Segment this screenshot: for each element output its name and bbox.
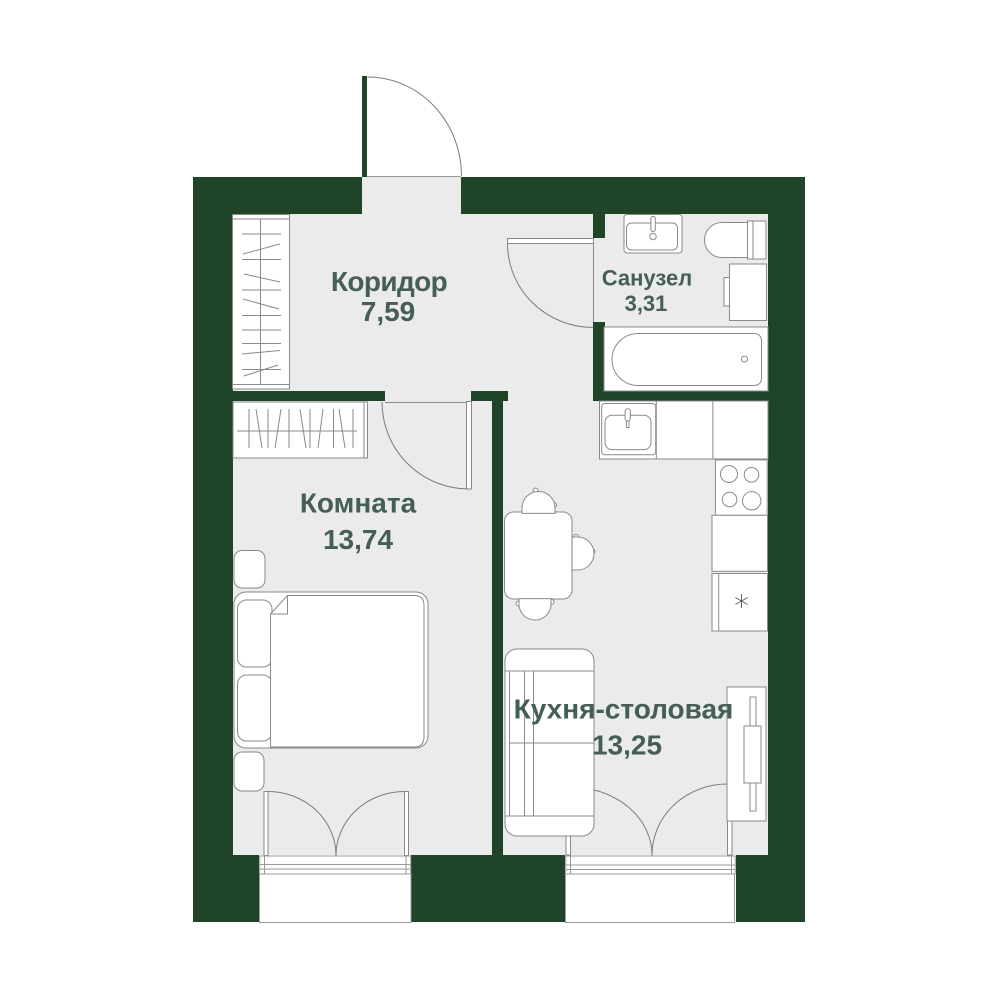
svg-text:3,31: 3,31 (625, 291, 668, 316)
svg-text:Коридор: Коридор (331, 266, 447, 297)
svg-text:7,59: 7,59 (361, 296, 416, 327)
svg-text:Комната: Комната (300, 488, 417, 519)
svg-text:Санузел: Санузел (602, 266, 692, 291)
svg-text:Кухня-столовая: Кухня-столовая (514, 694, 734, 725)
svg-text:13,25: 13,25 (592, 730, 662, 761)
svg-text:13,74: 13,74 (323, 524, 393, 555)
